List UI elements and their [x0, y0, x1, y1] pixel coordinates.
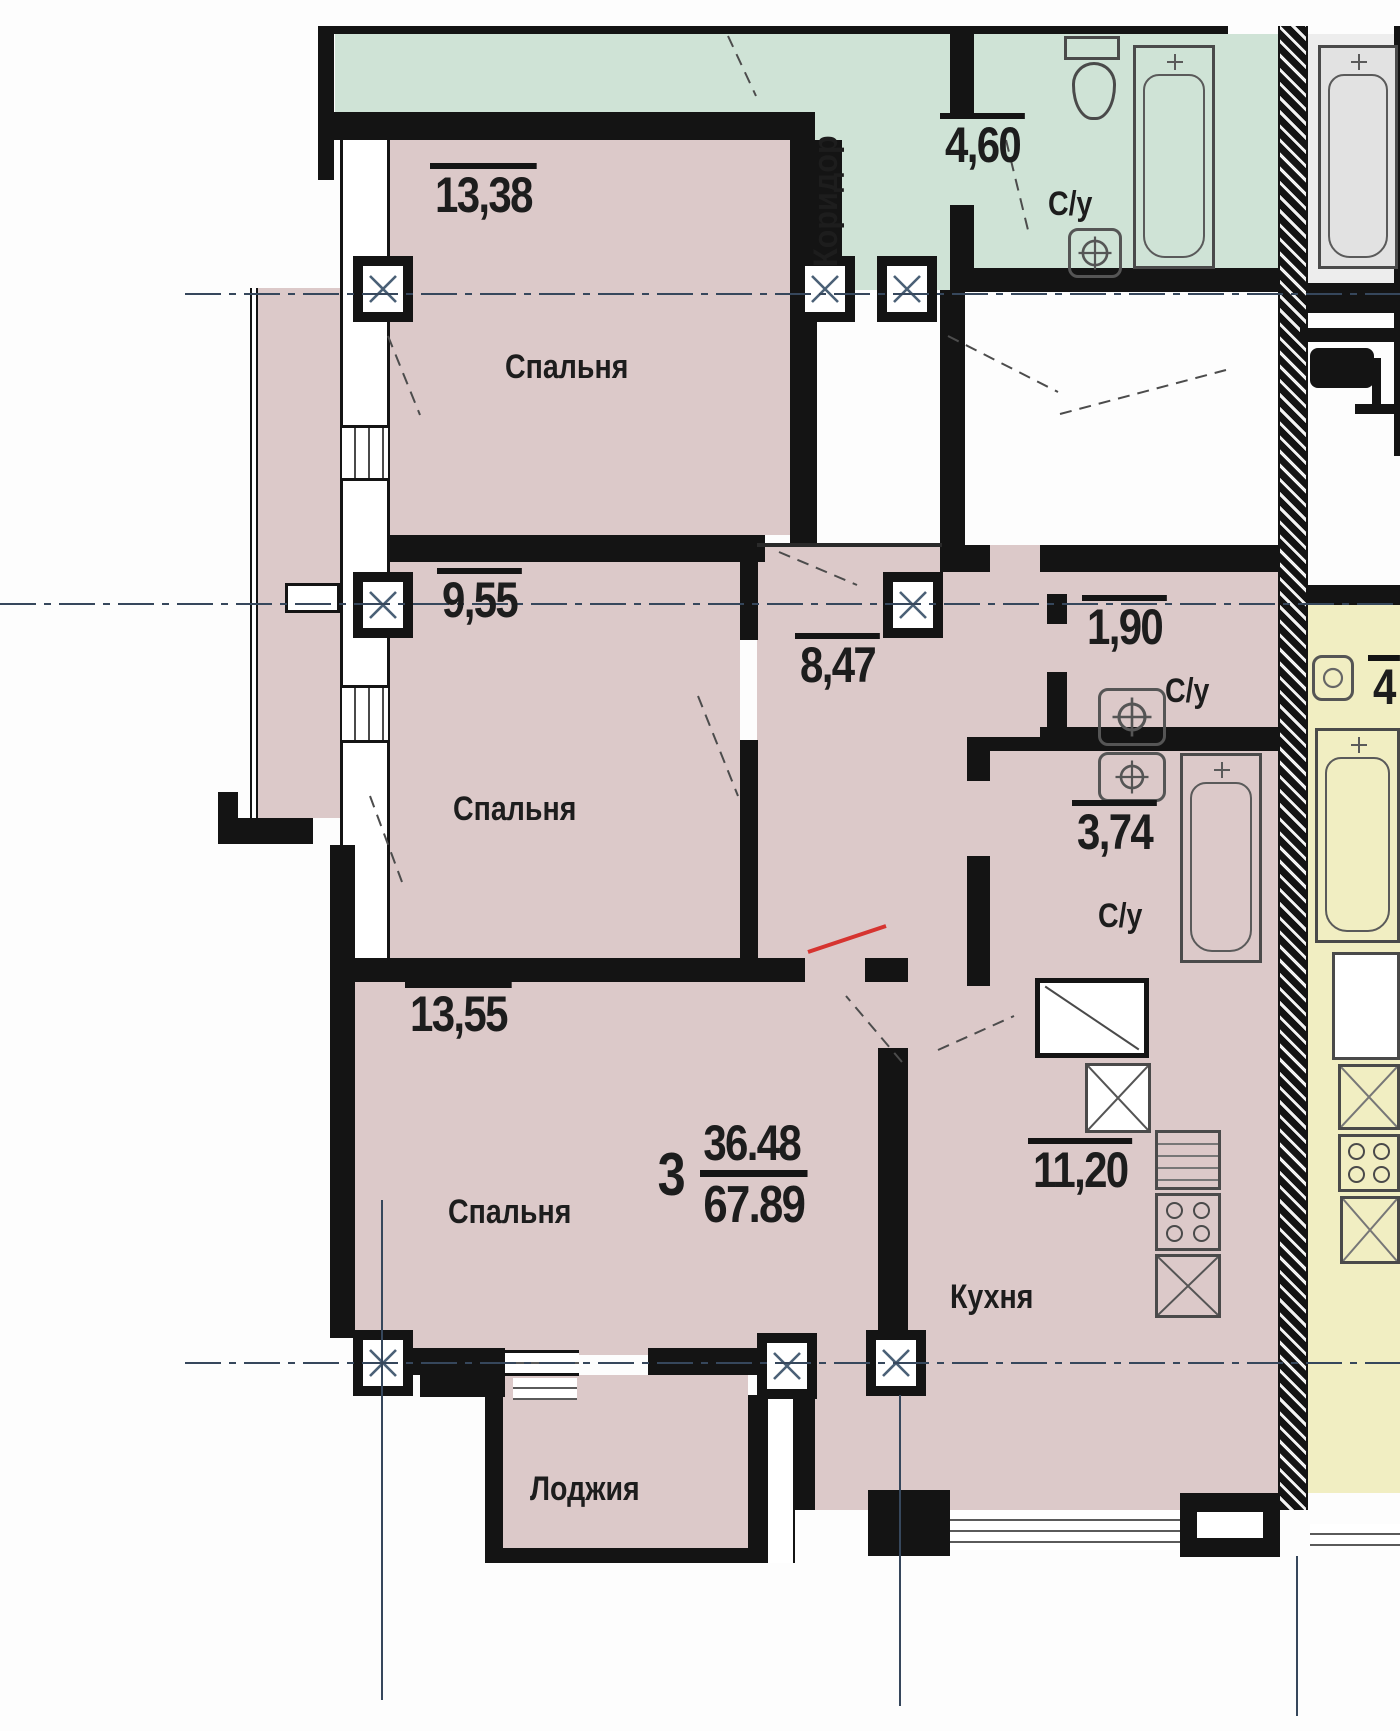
- kitchen-area-label: 11,20: [1028, 1138, 1132, 1195]
- kitchen-sink-icon: [1155, 1254, 1221, 1318]
- neighbor-counter-icon: [1332, 952, 1400, 1060]
- washbasin-icon: [1098, 752, 1166, 802]
- apartment-living-area: 36.48: [700, 1118, 808, 1177]
- neighbor-area-label: 4: [1368, 655, 1400, 712]
- washbasin-icon: [1098, 688, 1166, 746]
- kitchen-name-label: Кухня: [950, 1278, 1033, 1317]
- bedroom2-area-label: 9,55: [437, 568, 522, 625]
- toilet-icon: [1064, 36, 1120, 60]
- wc-small-name-label: С/у: [1165, 672, 1209, 711]
- kitchen-counter-icon: [1155, 1130, 1221, 1190]
- neighbor-kitchen-sink-icon: [1338, 1064, 1400, 1130]
- apartment-total-area: 67.89: [700, 1177, 808, 1231]
- stove-icon: [1155, 1193, 1221, 1251]
- wc-common-area-label: 4,60: [940, 113, 1025, 170]
- red-mark-line: [808, 926, 886, 952]
- corridor-name-label: Коридор: [807, 135, 846, 267]
- kitchen-sink-icon: [1085, 1063, 1151, 1133]
- wc-small-area-label: 1,90: [1082, 595, 1167, 652]
- floor-plan: 13,38 Спальня 9,55 Спальня 8,47 1,90 С/у…: [0, 0, 1400, 1731]
- bedroom3-name-label: Спальня: [448, 1193, 571, 1232]
- bathtub-icon: [1180, 753, 1262, 963]
- apartment-number-label: 3: [658, 1140, 686, 1209]
- bathroom-name-label: С/у: [1098, 897, 1142, 936]
- hall-area-label: 8,47: [795, 633, 880, 690]
- neighbor-kitchen-sink-icon: [1340, 1196, 1400, 1264]
- bedroom1-name-label: Спальня: [505, 348, 628, 387]
- neighbor-bathtub-icon: [1315, 728, 1400, 943]
- bedroom3-area-label: 13,55: [405, 982, 512, 1039]
- bathtub-icon: [1133, 45, 1215, 269]
- loggia-name-label: Лоджия: [530, 1470, 640, 1509]
- wc-common-name-label: С/у: [1048, 185, 1092, 224]
- neighbor-bathtub-icon: [1318, 45, 1398, 269]
- neighbor-sink-icon: [1312, 655, 1354, 701]
- furniture-icon: [1300, 318, 1400, 418]
- bedroom2-name-label: Спальня: [453, 790, 576, 829]
- bedroom1-area-label: 13,38: [430, 163, 537, 220]
- apartment-areas-label: 36.48 67.89: [700, 1118, 808, 1231]
- sink-icon: [1068, 228, 1122, 278]
- neighbor-stove-icon: [1338, 1134, 1400, 1192]
- bathroom-area-label: 3,74: [1072, 800, 1157, 857]
- vent-shaft-icon: [1035, 978, 1149, 1058]
